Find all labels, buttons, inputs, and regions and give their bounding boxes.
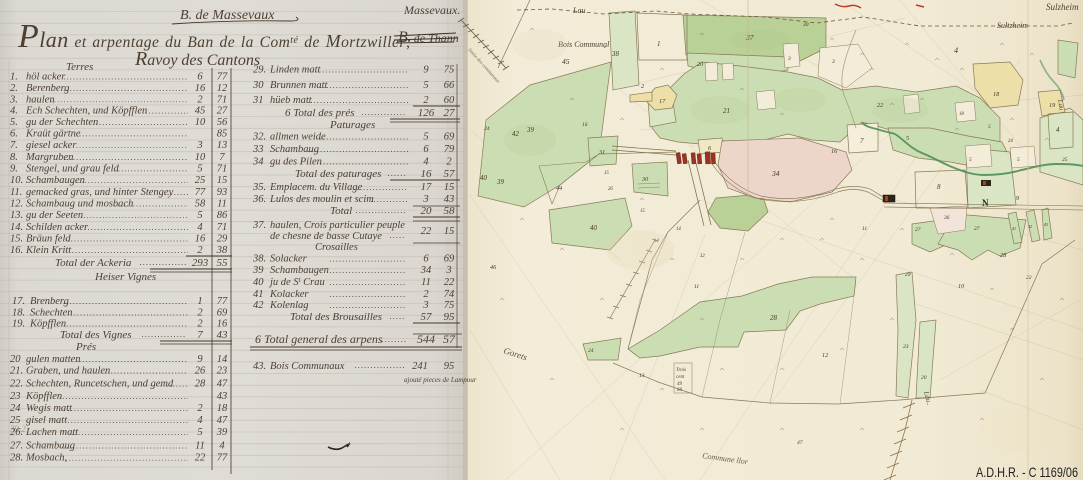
svg-text:56: 56 — [217, 117, 228, 128]
svg-text:23: 23 — [10, 391, 21, 402]
svg-text:Schambaug: Schambaug — [270, 144, 319, 155]
svg-text:32.: 32. — [252, 132, 266, 143]
svg-text:16: 16 — [195, 83, 206, 94]
svg-text:7: 7 — [197, 329, 203, 341]
svg-text:Kolenlag: Kolenlag — [269, 300, 309, 311]
svg-text:16.: 16. — [10, 245, 23, 256]
svg-text:18.: 18. — [12, 308, 25, 319]
svg-text:9.: 9. — [10, 163, 18, 174]
svg-text:23: 23 — [903, 344, 909, 350]
svg-text:45: 45 — [195, 106, 206, 117]
svg-text:16: 16 — [195, 234, 206, 245]
svg-text:Total des Vignes: Total des Vignes — [60, 329, 132, 341]
svg-text:de chesne de basse Cutaye: de chesne de basse Cutaye — [270, 231, 382, 242]
svg-text:15: 15 — [444, 182, 455, 193]
svg-text:3: 3 — [422, 194, 428, 205]
svg-text:126: 126 — [418, 107, 435, 119]
svg-text:Stengel, und grau feld: Stengel, und grau feld — [26, 163, 119, 174]
svg-text:38: 38 — [216, 245, 228, 256]
svg-text:gisel matt: gisel matt — [26, 415, 68, 426]
svg-text:4: 4 — [954, 46, 958, 55]
svg-text:4: 4 — [423, 157, 429, 168]
svg-text:25: 25 — [195, 175, 206, 186]
svg-text:Terres: Terres — [66, 61, 93, 73]
svg-text:Emplacem. du Village: Emplacem. du Village — [269, 182, 363, 193]
svg-text:16: 16 — [217, 319, 228, 330]
svg-text:Wegis matt: Wegis matt — [26, 403, 73, 414]
svg-text:16: 16 — [421, 168, 433, 180]
svg-text:cent: cent — [676, 375, 685, 380]
svg-text:Total des paturages: Total des paturages — [295, 168, 381, 180]
svg-text:75: 75 — [444, 300, 455, 311]
svg-text:57: 57 — [444, 168, 456, 180]
svg-text:11: 11 — [694, 284, 699, 290]
svg-text:5: 5 — [423, 80, 428, 91]
svg-text:Klein Kritt: Klein Kritt — [25, 245, 72, 256]
svg-text:30: 30 — [252, 80, 264, 91]
svg-text:5: 5 — [1017, 157, 1020, 163]
svg-text:8.: 8. — [10, 152, 18, 163]
svg-text:Schambaugen: Schambaugen — [270, 265, 329, 276]
svg-text:17: 17 — [421, 182, 432, 193]
svg-text:4: 4 — [197, 415, 203, 426]
svg-text:55: 55 — [217, 257, 229, 269]
svg-text:24: 24 — [484, 125, 490, 132]
svg-text:15: 15 — [604, 171, 609, 176]
svg-text:5: 5 — [197, 163, 202, 174]
svg-text:58: 58 — [444, 205, 456, 217]
svg-text:9: 9 — [1016, 195, 1019, 202]
svg-text:18: 18 — [993, 91, 1000, 98]
svg-text:10: 10 — [195, 152, 206, 163]
svg-text:11: 11 — [862, 226, 867, 232]
svg-text:hüeb matt: hüeb matt — [270, 95, 313, 106]
svg-text:86: 86 — [217, 210, 228, 221]
svg-text:18: 18 — [217, 403, 228, 414]
svg-text:77: 77 — [217, 72, 228, 83]
svg-text:Kraüt gärtne: Kraüt gärtne — [25, 128, 81, 139]
svg-text:79: 79 — [444, 144, 455, 155]
svg-text:26: 26 — [195, 366, 206, 377]
svg-text:Massevaux.: Massevaux. — [403, 3, 460, 17]
svg-text:9: 9 — [197, 354, 203, 365]
svg-text:23: 23 — [217, 366, 228, 377]
svg-text:11.: 11. — [10, 187, 22, 198]
svg-text:12: 12 — [217, 83, 228, 94]
svg-text:35.: 35. — [252, 182, 266, 193]
svg-text:47: 47 — [797, 439, 803, 446]
svg-text:6 Total general des arpens: 6 Total general des arpens — [255, 332, 383, 346]
svg-text:37.: 37. — [252, 220, 266, 231]
svg-text:2: 2 — [423, 289, 429, 300]
svg-text:13: 13 — [639, 373, 645, 379]
svg-text:1: 1 — [197, 296, 202, 307]
svg-text:2: 2 — [197, 308, 203, 319]
svg-text:Graben, und haulen: Graben, und haulen — [26, 366, 110, 377]
svg-text:5: 5 — [197, 427, 202, 438]
svg-text:2: 2 — [197, 319, 203, 330]
svg-text:39: 39 — [526, 127, 534, 134]
svg-text:27: 27 — [974, 226, 980, 232]
svg-text:4: 4 — [197, 222, 203, 233]
svg-text:Bräun feld: Bräun feld — [26, 234, 71, 245]
svg-text:Schambaugen: Schambaugen — [26, 175, 85, 186]
svg-text:3: 3 — [196, 140, 202, 151]
svg-text:36.: 36. — [252, 194, 266, 205]
svg-text:gu der Schechten: gu der Schechten — [26, 117, 98, 128]
svg-text:21: 21 — [723, 108, 730, 115]
svg-text:allmen weide: allmen weide — [270, 132, 326, 143]
svg-text:Solacker: Solacker — [270, 254, 308, 265]
svg-text:9: 9 — [423, 65, 429, 76]
svg-text:Total: Total — [330, 205, 352, 217]
svg-text:37: 37 — [745, 33, 755, 42]
svg-text:20: 20 — [921, 375, 927, 381]
svg-text:41: 41 — [1012, 226, 1016, 231]
svg-text:gemacked gras, und hinter Sten: gemacked gras, und hinter Stengey — [26, 187, 174, 198]
svg-text:17.: 17. — [12, 296, 25, 307]
svg-text:Schambaug und mosbach: Schambaug und mosbach — [26, 199, 133, 210]
svg-text:Heiser Vignes: Heiser Vignes — [94, 271, 156, 283]
svg-text:Crosailles: Crosailles — [315, 242, 358, 253]
svg-text:Total der Ackeria: Total der Ackeria — [55, 257, 132, 269]
svg-text:4: 4 — [1056, 127, 1060, 134]
svg-text:24: 24 — [588, 347, 594, 354]
svg-text:22: 22 — [877, 102, 883, 109]
svg-text:15: 15 — [640, 209, 645, 214]
svg-text:2.: 2. — [10, 83, 18, 94]
svg-text:71: 71 — [217, 94, 228, 105]
svg-text:22.: 22. — [10, 379, 23, 390]
svg-text:16: 16 — [582, 122, 588, 128]
svg-text:Schilden acker: Schilden acker — [26, 222, 89, 233]
svg-text:2: 2 — [423, 95, 429, 106]
svg-text:2: 2 — [446, 157, 452, 168]
svg-text:Lulos des moulin et scim: Lulos des moulin et scim — [269, 194, 374, 205]
svg-text:Bois Communaux: Bois Communaux — [270, 361, 345, 372]
svg-text:11: 11 — [195, 441, 205, 452]
svg-text:71: 71 — [217, 222, 228, 233]
svg-text:Lachen matt: Lachen matt — [25, 427, 79, 438]
svg-text:1.: 1. — [10, 72, 18, 83]
svg-text:3: 3 — [422, 300, 428, 311]
svg-text:47: 47 — [217, 415, 228, 426]
svg-text:Prés: Prés — [75, 341, 96, 353]
svg-text:haulen: haulen — [26, 94, 55, 105]
svg-text:B. de Thann: B. de Thann — [398, 29, 459, 46]
svg-text:13.: 13. — [10, 210, 23, 221]
svg-text:41: 41 — [253, 289, 264, 300]
svg-text:77: 77 — [195, 187, 206, 198]
svg-text:25: 25 — [1062, 157, 1068, 163]
svg-text:27: 27 — [444, 107, 456, 119]
svg-text:2: 2 — [197, 245, 203, 256]
svg-text:Brenberg: Brenberg — [30, 296, 69, 307]
svg-text:43: 43 — [1044, 222, 1048, 227]
svg-text:40: 40 — [253, 277, 264, 288]
svg-text:44: 44 — [556, 185, 562, 192]
svg-text:Sultzheim: Sultzheim — [997, 21, 1028, 30]
svg-text:gu des Pilen: gu des Pilen — [270, 157, 322, 168]
svg-text:12: 12 — [822, 352, 828, 359]
svg-text:2: 2 — [197, 403, 203, 414]
svg-text:14: 14 — [217, 354, 228, 365]
svg-text:77: 77 — [217, 453, 228, 464]
svg-text:Köpfflen: Köpfflen — [25, 391, 62, 402]
svg-text:Mosbach,: Mosbach, — [25, 453, 67, 464]
svg-text:14: 14 — [676, 227, 681, 232]
svg-text:15: 15 — [217, 175, 228, 186]
svg-text:30: 30 — [641, 176, 649, 183]
svg-text:10: 10 — [195, 117, 206, 128]
svg-text:39: 39 — [216, 427, 228, 438]
svg-text:38: 38 — [611, 51, 619, 58]
svg-text:5.: 5. — [10, 117, 18, 128]
svg-text:71: 71 — [217, 163, 228, 174]
svg-text:293: 293 — [192, 257, 209, 269]
svg-text:241: 241 — [412, 361, 428, 372]
svg-text:27: 27 — [915, 227, 921, 233]
svg-text:7: 7 — [219, 152, 225, 163]
svg-text:45: 45 — [562, 57, 570, 66]
svg-text:32: 32 — [700, 254, 705, 259]
svg-text:giesel acker: giesel acker — [26, 140, 77, 151]
svg-text:24: 24 — [10, 403, 21, 414]
svg-text:20: 20 — [697, 61, 704, 68]
svg-text:Linden matt: Linden matt — [269, 65, 322, 76]
svg-text:22: 22 — [421, 226, 432, 237]
svg-text:28: 28 — [1000, 252, 1007, 259]
svg-text:27.: 27. — [10, 441, 23, 452]
svg-text:57: 57 — [421, 311, 433, 323]
svg-text:6.: 6. — [10, 128, 18, 139]
svg-text:19: 19 — [1049, 102, 1055, 109]
svg-text:24: 24 — [1008, 139, 1013, 144]
svg-text:6: 6 — [423, 144, 429, 155]
svg-text:4.: 4. — [10, 106, 18, 117]
svg-text:29.: 29. — [253, 65, 266, 76]
svg-text:5: 5 — [988, 124, 991, 130]
svg-text:Paturages: Paturages — [329, 119, 375, 131]
svg-text:Total des Brousailles: Total des Brousailles — [290, 311, 382, 323]
svg-text:42: 42 — [512, 131, 519, 138]
svg-text:3: 3 — [787, 56, 791, 62]
svg-text:22: 22 — [195, 453, 206, 464]
svg-text:28: 28 — [195, 379, 206, 390]
svg-text:3: 3 — [445, 265, 451, 276]
svg-text:12.: 12. — [10, 199, 23, 210]
svg-text:66: 66 — [444, 80, 455, 91]
svg-text:2: 2 — [641, 83, 644, 90]
svg-text:5: 5 — [969, 157, 972, 163]
svg-text:33: 33 — [252, 144, 264, 155]
svg-text:31: 31 — [598, 149, 605, 156]
svg-text:34: 34 — [420, 265, 432, 276]
svg-text:Sulzheim: Sulzheim — [1046, 2, 1079, 12]
svg-text:17: 17 — [659, 98, 666, 105]
svg-text:14.: 14. — [10, 222, 23, 233]
svg-text:95: 95 — [444, 361, 455, 372]
svg-text:höl acker: höl acker — [26, 72, 66, 83]
svg-text:gu der Seeten: gu der Seeten — [26, 210, 83, 221]
svg-text:3.: 3. — [9, 94, 18, 105]
svg-text:13: 13 — [217, 140, 228, 151]
svg-text:21.: 21. — [10, 366, 23, 377]
svg-text:haulen, Crois particulier peup: haulen, Crois particulier peuple — [270, 220, 405, 231]
svg-text:30: 30 — [802, 22, 809, 28]
svg-text:5: 5 — [197, 210, 202, 221]
svg-text:3: 3 — [831, 59, 835, 65]
svg-text:19.: 19. — [12, 319, 25, 330]
svg-text:29: 29 — [905, 272, 911, 278]
svg-text:27: 27 — [217, 106, 228, 117]
svg-text:34: 34 — [771, 169, 780, 178]
svg-text:7: 7 — [860, 138, 864, 145]
svg-text:38.: 38. — [252, 254, 266, 265]
svg-text:4: 4 — [219, 441, 225, 452]
svg-text:11: 11 — [421, 277, 431, 288]
svg-text:74: 74 — [444, 289, 455, 300]
svg-text:11: 11 — [217, 199, 227, 210]
svg-text:40: 40 — [480, 175, 487, 182]
svg-text:ajouté pieces de Lampour: ajouté pieces de Lampour — [404, 376, 477, 384]
svg-text:10: 10 — [958, 283, 965, 290]
svg-text:29: 29 — [217, 234, 228, 245]
svg-text:43.: 43. — [253, 361, 266, 372]
svg-text:39.2: 39.2 — [9, 424, 26, 434]
svg-text:31: 31 — [252, 95, 264, 106]
svg-text:7.: 7. — [10, 140, 18, 151]
svg-text:6 Total des prés: 6 Total des prés — [285, 107, 355, 119]
svg-text:46: 46 — [490, 264, 497, 271]
svg-text:N: N — [982, 198, 989, 208]
svg-text:69: 69 — [444, 132, 455, 143]
svg-text:49: 49 — [677, 382, 683, 387]
svg-text:Köpfflen: Köpfflen — [29, 319, 66, 330]
svg-text:16: 16 — [831, 148, 838, 155]
svg-text:Ravoy des Cantons: Ravoy des Cantons — [134, 48, 260, 70]
svg-text:39: 39 — [252, 265, 264, 276]
svg-text:69: 69 — [444, 254, 455, 265]
svg-text:43: 43 — [217, 329, 229, 341]
svg-text:Schechten, Runcetschen, und ge: Schechten, Runcetschen, und gemd — [26, 379, 174, 390]
svg-text:15: 15 — [444, 226, 455, 237]
svg-text:Kolacker: Kolacker — [269, 289, 309, 300]
svg-text:Ech Schechten, und Köpfflen: Ech Schechten, und Köpfflen — [25, 106, 147, 117]
svg-text:26: 26 — [608, 187, 613, 192]
svg-text:.: . — [604, 41, 606, 50]
svg-text:42: 42 — [253, 300, 264, 311]
svg-text:Berenberg: Berenberg — [26, 83, 70, 94]
svg-text:Brunnen matt: Brunnen matt — [270, 80, 329, 91]
svg-text:47: 47 — [217, 379, 228, 390]
svg-text:60: 60 — [677, 388, 683, 393]
svg-text:Trois: Trois — [676, 368, 686, 373]
svg-text:1: 1 — [657, 41, 660, 48]
svg-text:Margruben: Margruben — [25, 152, 73, 163]
svg-text:A.D.H.R. - C 1169/06: A.D.H.R. - C 1169/06 — [976, 464, 1078, 480]
svg-text:5: 5 — [906, 135, 909, 142]
svg-text:ju de St Crau: ju de St Crau — [268, 276, 325, 288]
svg-text:5: 5 — [423, 132, 428, 143]
svg-text:10.: 10. — [10, 175, 23, 186]
svg-text:18: 18 — [959, 112, 964, 117]
svg-text:8: 8 — [937, 184, 941, 191]
svg-text:58: 58 — [195, 199, 206, 210]
svg-text:69: 69 — [217, 308, 228, 319]
svg-text:34: 34 — [252, 157, 264, 168]
svg-text:Schambaug: Schambaug — [26, 441, 75, 452]
svg-text:43: 43 — [444, 194, 455, 205]
svg-text:6: 6 — [423, 254, 429, 265]
svg-text:43: 43 — [217, 391, 228, 402]
svg-text:36: 36 — [943, 215, 950, 221]
svg-text:Lau: Lau — [572, 6, 585, 15]
svg-text:22: 22 — [444, 277, 455, 288]
svg-text:20: 20 — [421, 205, 433, 217]
svg-text:2: 2 — [197, 94, 203, 105]
svg-text:Schechten: Schechten — [30, 308, 73, 319]
svg-text:77: 77 — [217, 296, 228, 307]
svg-text:85: 85 — [217, 128, 228, 139]
svg-text:39: 39 — [496, 179, 504, 186]
svg-text:20: 20 — [10, 354, 21, 365]
svg-text:40: 40 — [590, 225, 597, 232]
svg-text:gulen matten: gulen matten — [26, 354, 81, 365]
svg-text:6: 6 — [197, 72, 203, 83]
svg-text:28: 28 — [770, 315, 777, 322]
svg-text:28.: 28. — [10, 453, 23, 464]
svg-text:95: 95 — [444, 311, 456, 323]
svg-text:75: 75 — [444, 65, 455, 76]
svg-text:93: 93 — [217, 187, 228, 198]
svg-text:60: 60 — [444, 95, 455, 106]
svg-text:15.: 15. — [10, 234, 23, 245]
